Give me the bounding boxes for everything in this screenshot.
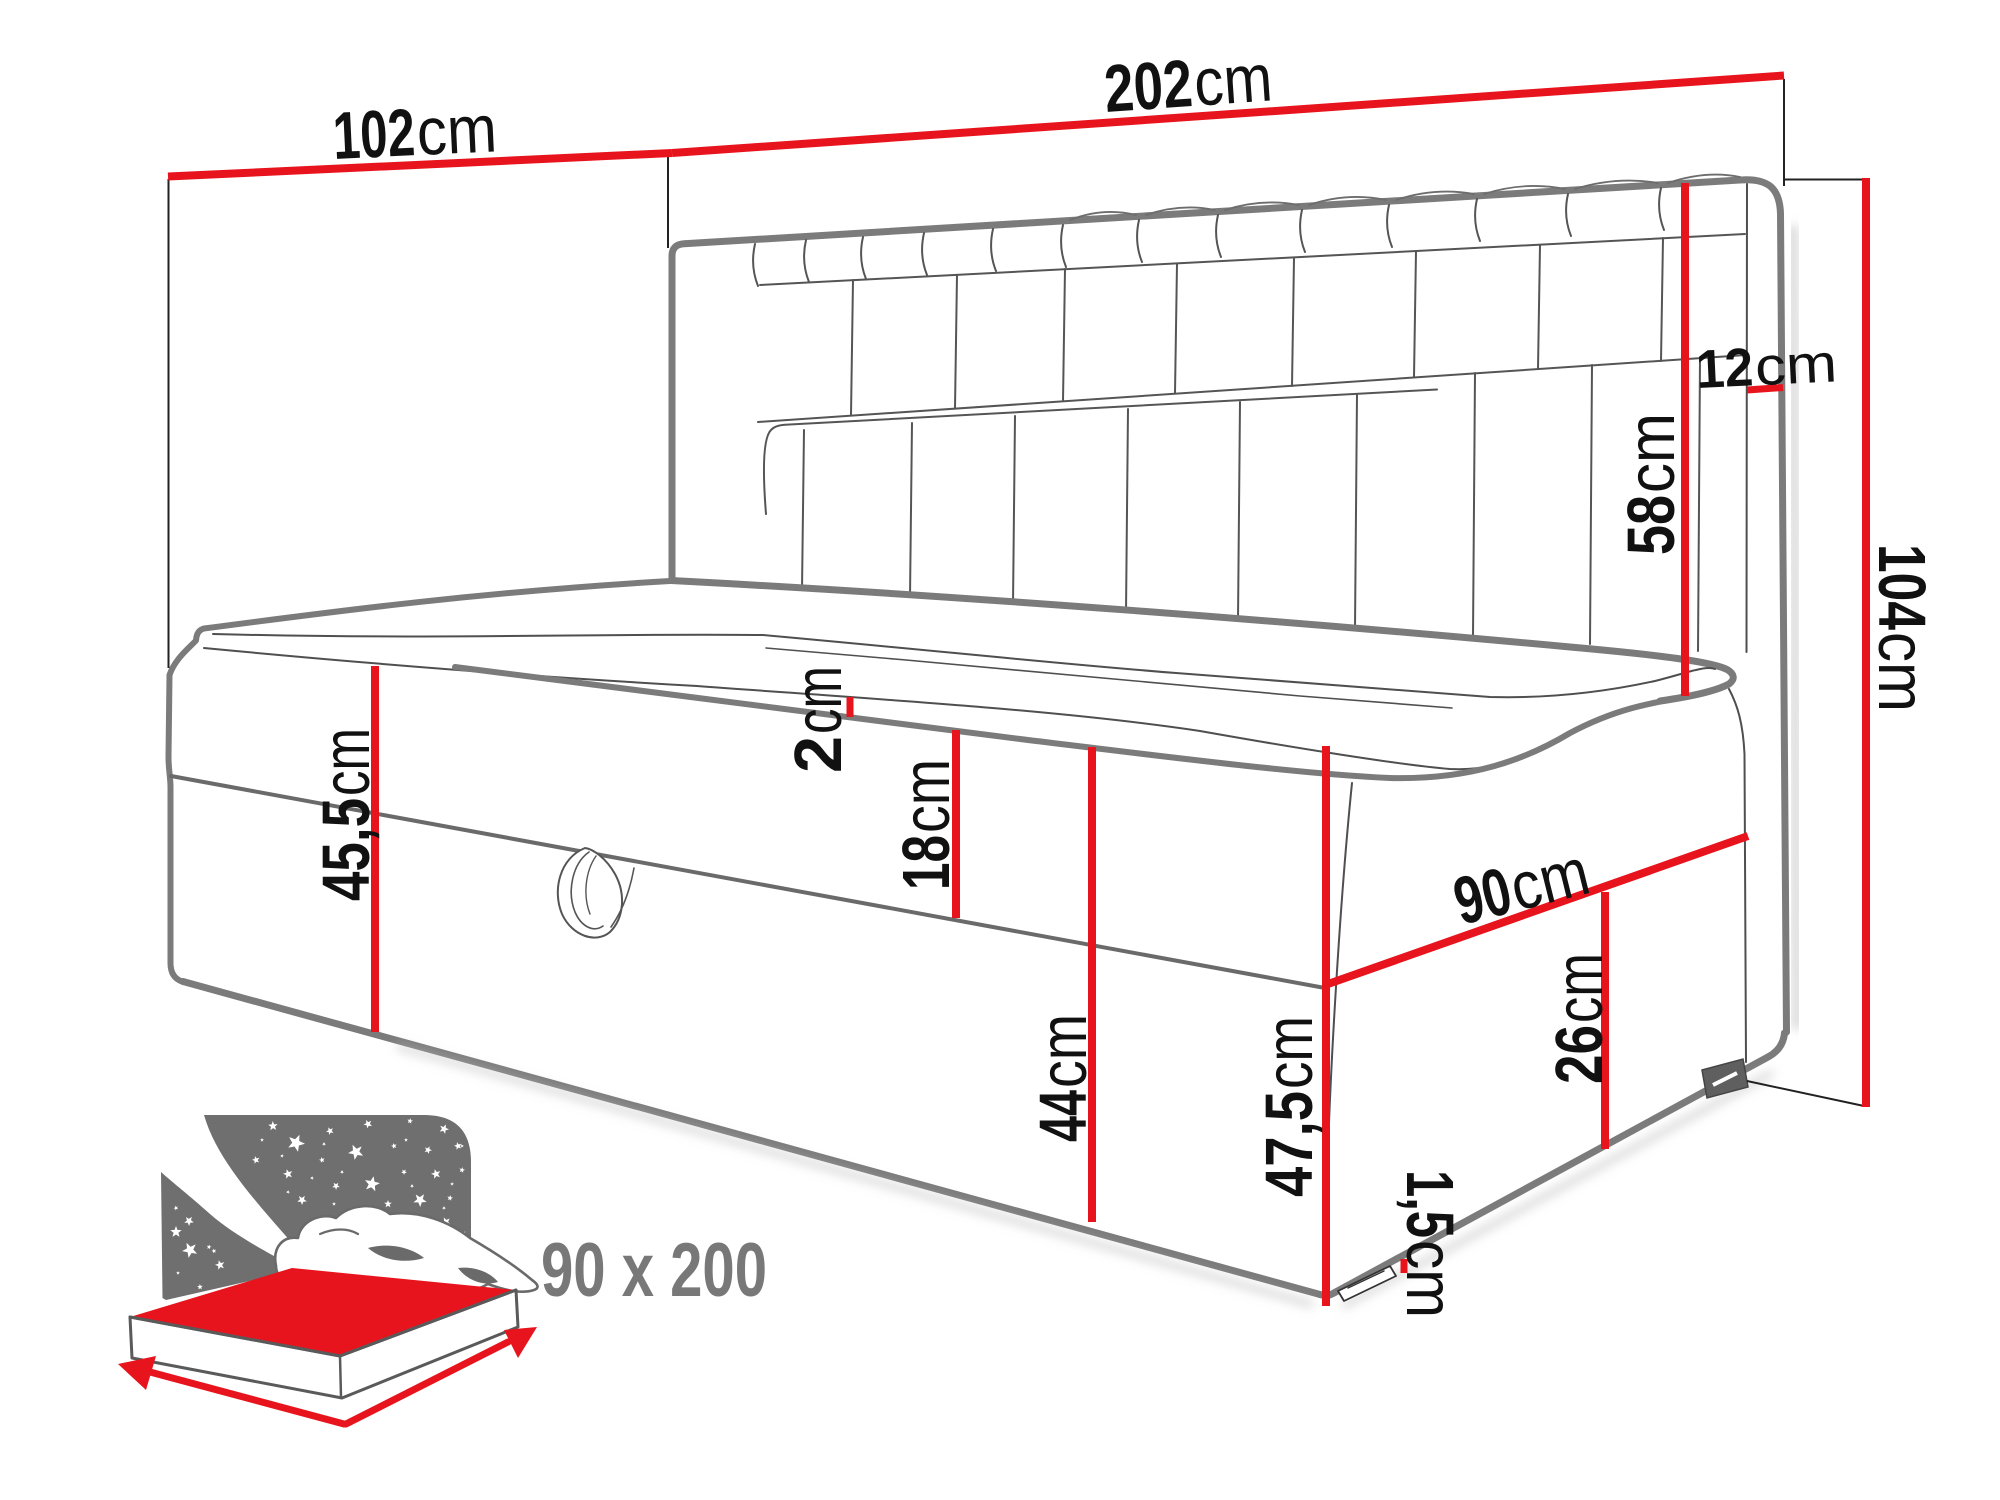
svg-text:58cm: 58cm (1614, 413, 1689, 555)
svg-text:202cm: 202cm (1102, 40, 1275, 127)
svg-text:26cm: 26cm (1542, 953, 1617, 1084)
svg-text:90 x 200: 90 x 200 (541, 1228, 767, 1313)
svg-text:102cm: 102cm (331, 91, 498, 174)
svg-text:104cm: 104cm (1864, 544, 1939, 712)
svg-text:12cm: 12cm (1695, 333, 1839, 400)
svg-text:2cm: 2cm (781, 666, 856, 773)
svg-text:45,5cm: 45,5cm (309, 728, 384, 901)
svg-text:18cm: 18cm (889, 759, 964, 890)
svg-text:1,5cm: 1,5cm (1392, 1170, 1467, 1318)
svg-text:44cm: 44cm (1026, 1014, 1101, 1142)
svg-text:47,5cm: 47,5cm (1252, 1016, 1327, 1197)
